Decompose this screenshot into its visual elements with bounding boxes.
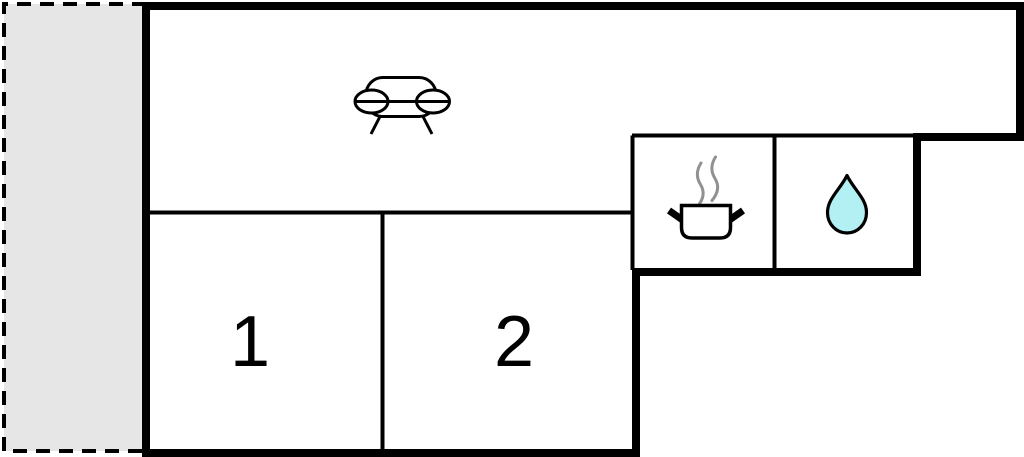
floor-plan: 1 2: [0, 0, 1024, 457]
room-2-label: 2: [494, 302, 534, 382]
building-outline: [146, 6, 1020, 453]
pot-body: [682, 206, 731, 239]
room-1-label: 1: [230, 302, 270, 382]
terrace-area: [4, 4, 143, 451]
